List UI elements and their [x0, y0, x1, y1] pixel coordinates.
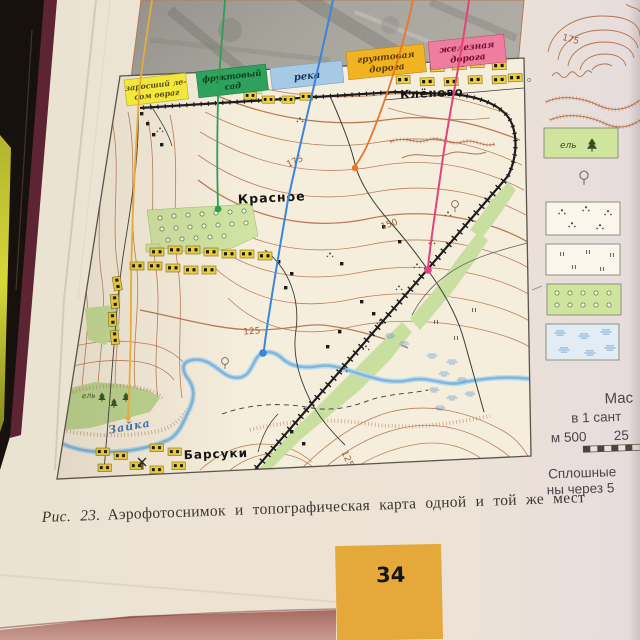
- caption-prefix: Рис. 23.: [41, 507, 101, 526]
- leader-railway-dot: [424, 266, 432, 274]
- page-number-tab: 34: [335, 544, 443, 640]
- scale-bar-right-label: 25: [614, 428, 630, 444]
- note-line1-fragment: Сплошные: [548, 464, 617, 481]
- orchard-tree-icon: [568, 303, 572, 307]
- orchard-tree-icon: [607, 291, 611, 295]
- legend-marsh-box: [546, 324, 619, 360]
- topographic-map: 175 150 125 125 Клёново Красное Барсуки …: [56, 58, 531, 487]
- book-page-photo: 175 ель: [0, 0, 640, 640]
- orchard-tree-icon: [568, 291, 572, 295]
- orchard-tree-icon: [594, 291, 598, 295]
- right-page-edge-shadow: [628, 0, 640, 640]
- leader-ravine-dot: [125, 415, 130, 420]
- leader-dirt-road-dot: [352, 165, 358, 171]
- scale-bar-left-label: м 500: [551, 429, 587, 445]
- scale-line2-fragment: в 1 сант: [571, 409, 622, 426]
- leader-orchard-dot: [215, 206, 222, 213]
- orchard-tree-icon: [581, 291, 585, 295]
- ribbon-label: сад: [224, 81, 242, 93]
- legend-spruce-box: ель: [544, 128, 618, 158]
- legend-shrub-box: [546, 202, 620, 235]
- orchard-tree-icon: [555, 291, 559, 295]
- legend-meadow-box: [546, 244, 620, 275]
- orchard-tree-icon: [607, 303, 611, 307]
- legend-spruce-label: ель: [560, 141, 577, 151]
- orchard-tree-icon: [594, 303, 598, 307]
- orchard-tree-icon: [581, 303, 585, 307]
- page-number: 34: [376, 563, 406, 588]
- leader-river-dot: [259, 349, 267, 357]
- orchard-tree-icon: [555, 303, 559, 307]
